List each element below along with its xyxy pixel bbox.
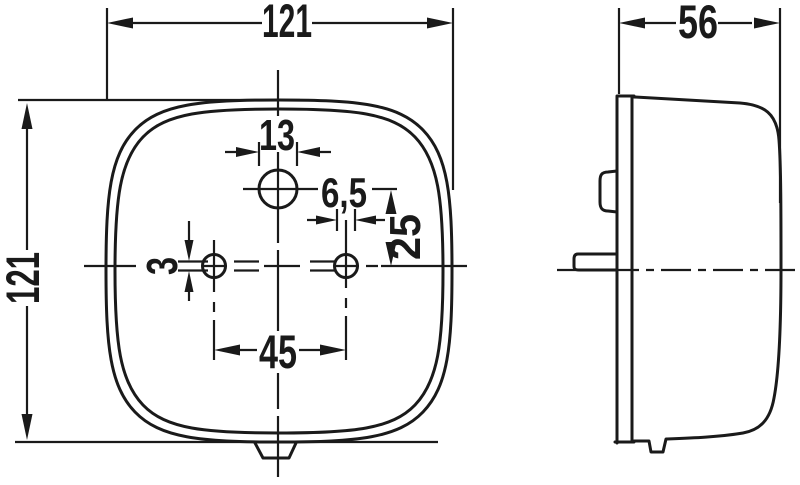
arrowhead-top [386,190,397,214]
arrowhead-right [320,345,346,356]
dim-label-mounting-hole: 6,5 [321,169,367,216]
dimension-overall-height: 121 [0,103,438,442]
dim-label-slot-width: 3 [138,257,187,275]
arrowhead-right [754,18,780,29]
dim-label-overall-width: 121 [262,0,312,47]
extension-lines [18,8,453,190]
dim-label-overall-height: 121 [0,252,49,304]
dim-label-hole-offset: 25 [381,214,430,260]
dimension-hole-offset: 25 [381,190,430,266]
dim-label-hole-spacing: 45 [259,325,297,378]
side-view [557,96,796,452]
technical-drawing-canvas: 121 121 13 6,5 25 3 [0,0,800,485]
dimension-slot-width: 3 [138,221,194,301]
arrowhead-left [236,147,259,157]
front-bottom-tab [255,443,296,458]
dim-label-lens-hole: 13 [259,111,295,160]
arrowhead-top [22,103,33,129]
side-lens-profile [634,97,781,452]
arrowhead-right [355,216,376,225]
arrowhead-left [214,345,240,356]
side-connector-bump [600,171,617,212]
arrowhead-left [107,18,133,29]
drawing-svg: 121 121 13 6,5 25 3 [0,0,800,485]
dimension-lens-hole: 13 [225,111,331,166]
dimension-overall-width: 121 [18,0,453,190]
dimension-hole-spacing: 45 [214,325,346,378]
arrowhead-left [619,18,645,29]
arrowhead-right [427,18,453,29]
side-mounting-stud [574,254,617,270]
dim-label-depth: 56 [678,0,718,48]
arrowhead-right [297,147,320,157]
arrowhead-bottom [22,414,33,440]
arrowhead-left [316,216,337,225]
